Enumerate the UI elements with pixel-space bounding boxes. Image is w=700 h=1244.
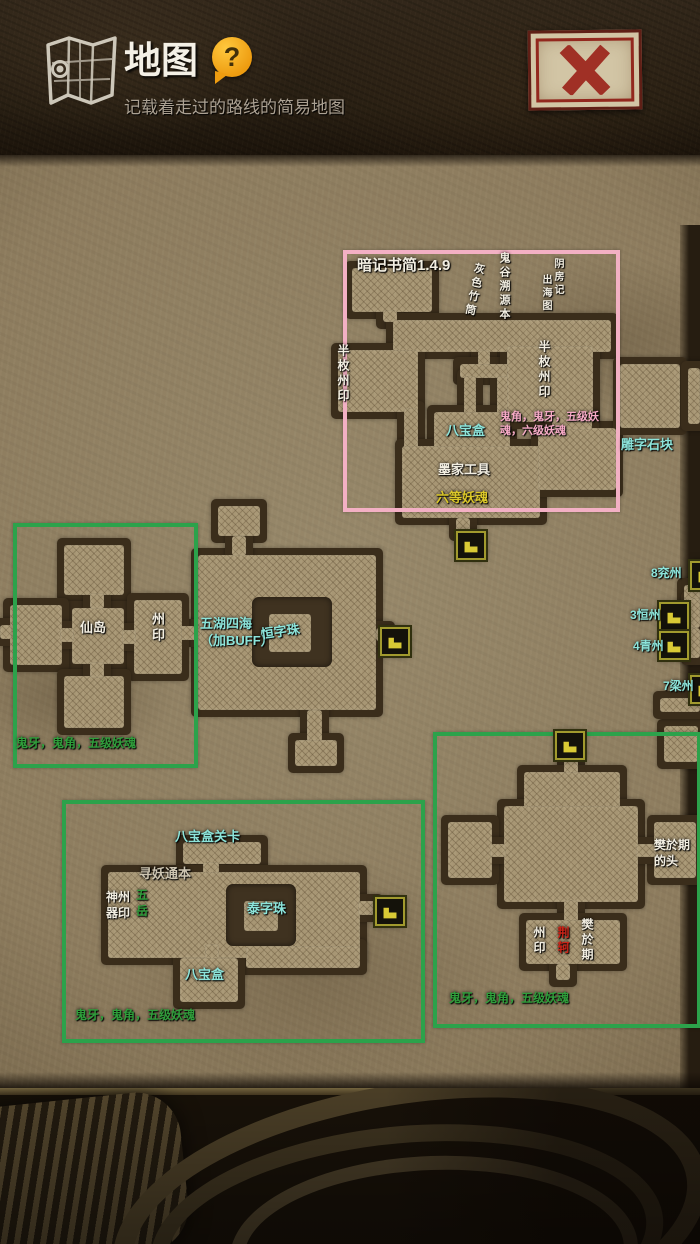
close-button[interactable] xyxy=(528,29,643,110)
map-label: 鬼牙，鬼角，五级妖魂 xyxy=(449,991,569,1007)
map-room xyxy=(402,446,540,518)
map-room xyxy=(620,364,680,428)
map-label: 出海图 xyxy=(540,274,550,313)
map-label: 鬼牙，鬼角，五级妖魂 xyxy=(75,1008,195,1024)
map-room xyxy=(636,844,656,857)
map-room xyxy=(232,536,246,556)
map-label: 阴房记 xyxy=(552,258,562,297)
map-room xyxy=(90,593,104,609)
map-label: 荆轲 xyxy=(557,926,569,956)
map-label: 神州 器印 xyxy=(106,890,130,921)
page-subtitle: 记载着走过的路线的简易地图 xyxy=(124,93,345,118)
map-label: 4青州 xyxy=(633,639,664,655)
map-label: 八宝盒 xyxy=(185,967,224,984)
portal-icon xyxy=(375,897,405,926)
help-icon[interactable]: ? xyxy=(212,37,252,77)
map-label: 寻妖通本 xyxy=(139,866,191,883)
map-room xyxy=(504,806,638,902)
map-label: 六等妖魂 xyxy=(436,490,488,507)
map-room xyxy=(60,628,74,642)
map-room xyxy=(295,740,337,766)
map-room xyxy=(556,964,570,980)
map-label: 州印 xyxy=(533,926,545,956)
map-room xyxy=(338,350,418,412)
map-label: 泰字珠 xyxy=(247,901,286,918)
portal-icon xyxy=(659,602,689,631)
close-icon xyxy=(554,45,617,96)
map-room xyxy=(688,598,700,628)
map-label: 8兖州 xyxy=(651,566,682,582)
portal-icon xyxy=(555,731,585,760)
rope-shade xyxy=(0,1088,700,1244)
map-label: 鬼谷溯源本 xyxy=(498,252,509,322)
map-room xyxy=(564,900,578,922)
map-label: 樊於期 xyxy=(581,918,593,963)
map-label: 半枚州印 xyxy=(538,340,550,400)
map-screen: 地图 ? 记载着走过的路线的简易地图 暗记书简1.4.9灰色竹筒鬼谷溯源本阴房记… xyxy=(0,0,700,1244)
map-label: 州印 xyxy=(151,612,164,644)
map-room xyxy=(524,772,620,810)
portal-icon xyxy=(456,531,486,560)
map-label: 半枚州印 xyxy=(337,344,349,404)
map-room xyxy=(688,628,700,658)
map-label: 灰色竹筒 xyxy=(462,261,484,318)
map-label: 樊於期 的头 xyxy=(654,838,690,869)
page-title: 地图 xyxy=(124,30,198,84)
title-block: 地图 ? 记载着走过的路线的简易地图 xyxy=(124,30,345,118)
map-label: 鬼角，鬼牙，五级妖 魂，六级妖魂 xyxy=(500,410,618,439)
map-room xyxy=(688,368,700,424)
map-room xyxy=(218,506,260,536)
map-room xyxy=(64,545,124,595)
map-label: 墨家工具 xyxy=(438,462,490,479)
map-room xyxy=(664,726,698,762)
map-label: 八宝盒 xyxy=(446,423,485,440)
portal-icon xyxy=(690,561,700,590)
map-room xyxy=(404,408,418,450)
map-stage: 暗记书简1.4.9灰色竹筒鬼谷溯源本阴房记出海图半枚州印半枚州印鬼角，鬼牙，五级… xyxy=(0,155,700,1088)
map-room xyxy=(0,625,12,639)
map-label: 雕字石块 xyxy=(621,437,673,454)
rope-decoration xyxy=(0,1088,700,1244)
header: 地图 ? 记载着走过的路线的简易地图 xyxy=(0,0,700,155)
map-room xyxy=(64,676,124,728)
map-room xyxy=(358,901,376,915)
map-room xyxy=(10,605,62,665)
map-label: 3恒州 xyxy=(630,608,661,624)
map-room xyxy=(448,822,492,878)
map-label: 仙岛 xyxy=(80,620,106,637)
map-room xyxy=(246,946,360,968)
map-label: 五 岳 xyxy=(136,888,148,919)
map-room xyxy=(464,376,476,416)
map-glyph-icon xyxy=(42,33,120,109)
map-label: 暗记书简1.4.9 xyxy=(357,256,450,276)
map-room xyxy=(122,630,136,644)
map-label: 鬼牙，鬼角，五级妖魂 xyxy=(16,736,136,752)
map-room xyxy=(90,662,104,678)
portal-icon xyxy=(380,627,410,656)
map-room xyxy=(307,710,322,742)
map-label: 八宝盒关卡 xyxy=(175,829,240,846)
map-room xyxy=(490,844,506,857)
map-label: 7梁州 xyxy=(663,679,694,695)
